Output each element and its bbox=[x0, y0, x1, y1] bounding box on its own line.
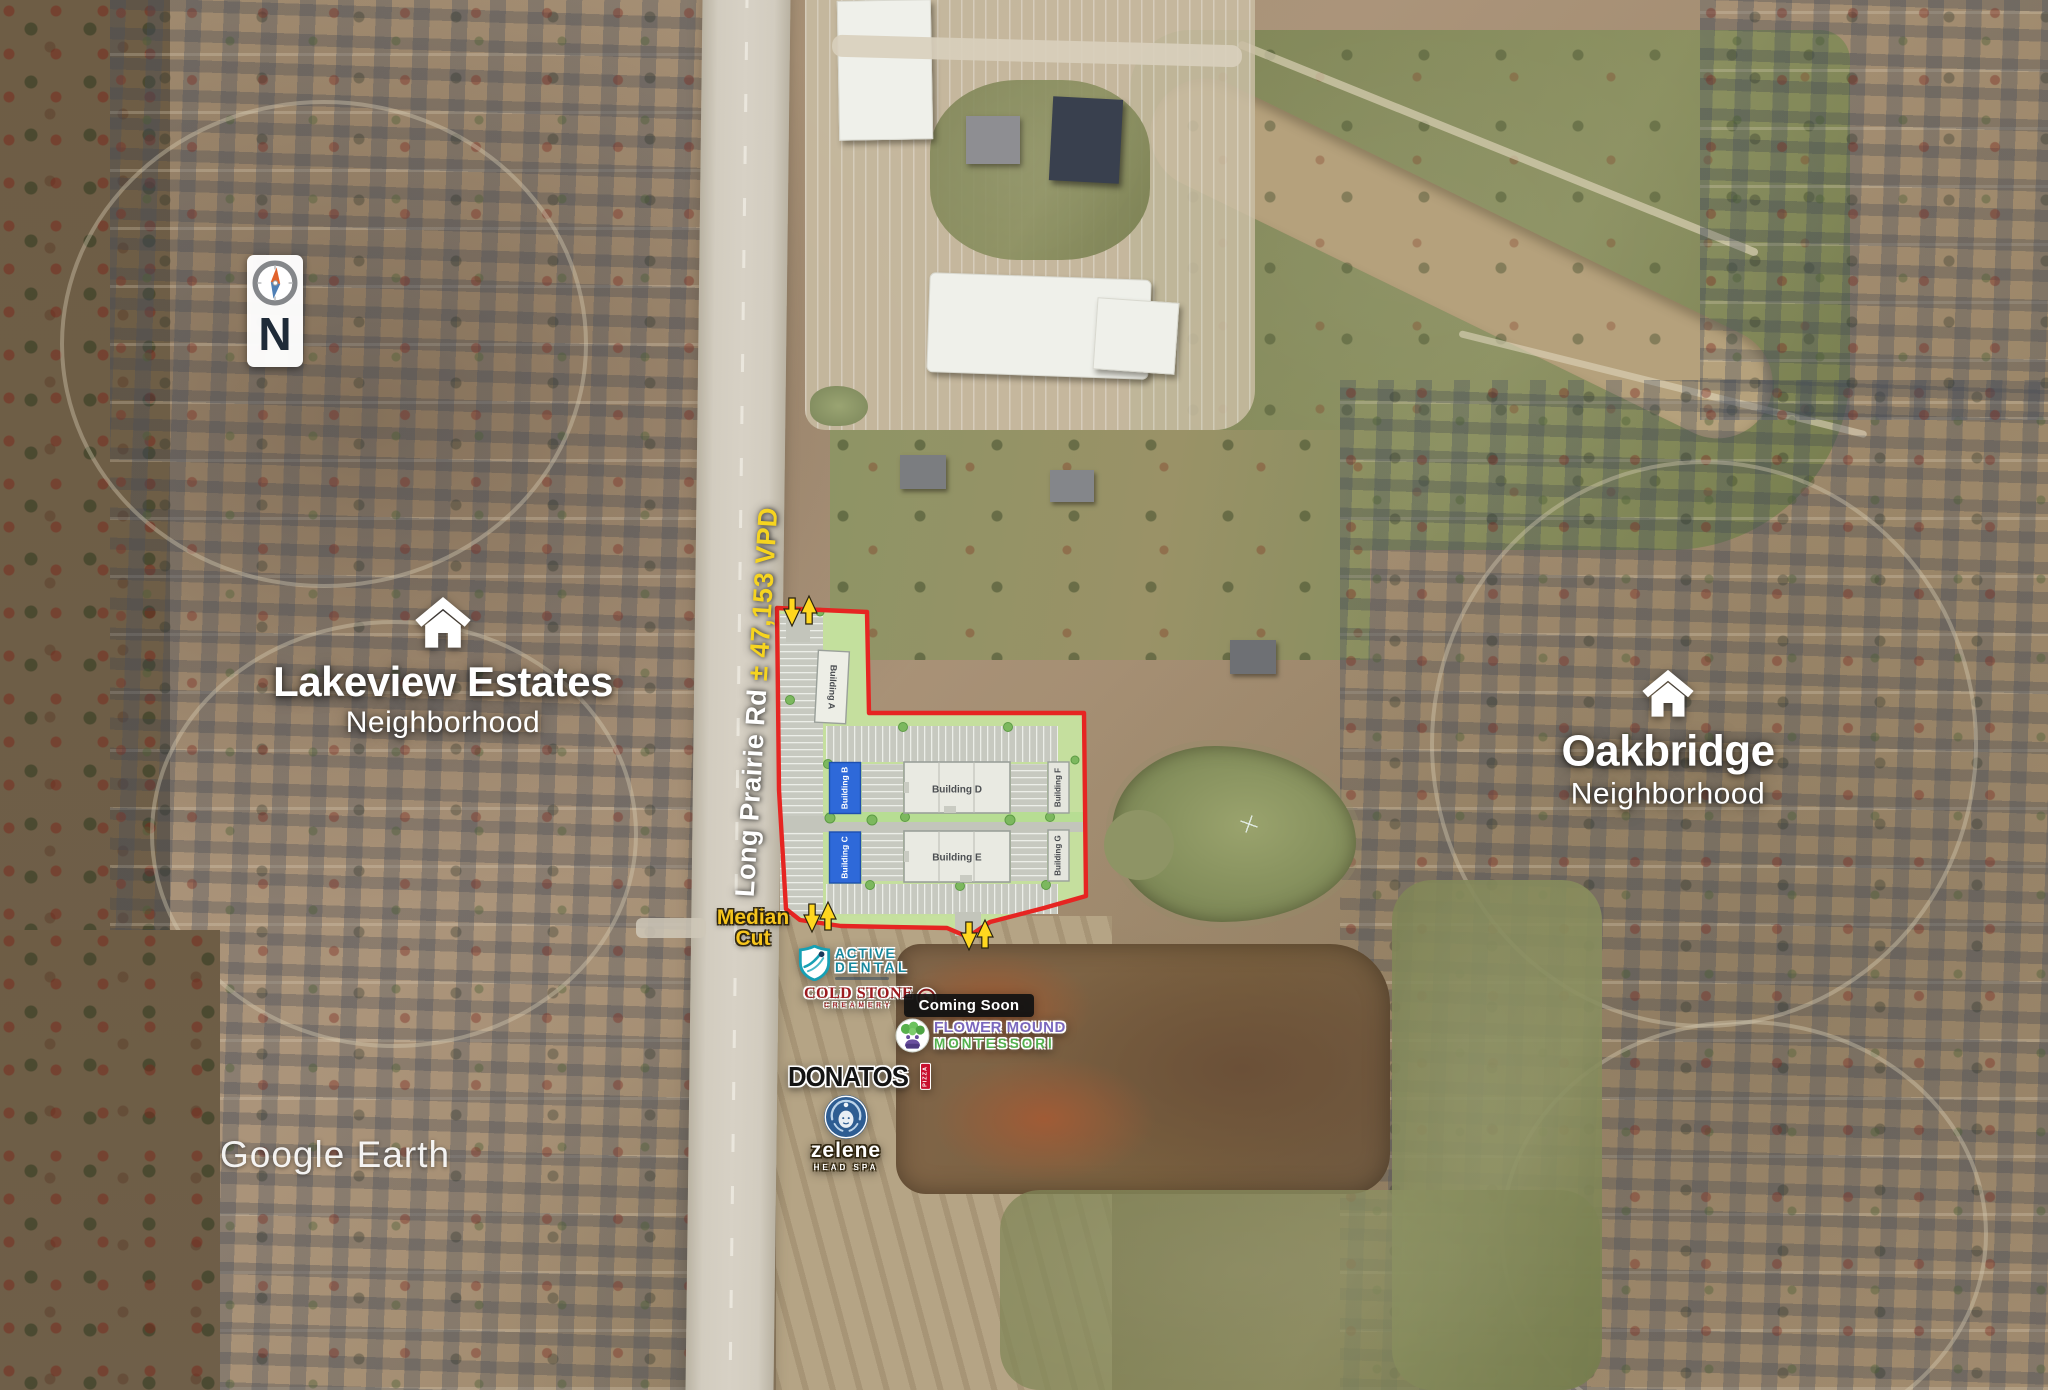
coming-soon-badge: Coming Soon bbox=[904, 994, 1034, 1017]
dark-roof-building bbox=[1049, 96, 1123, 184]
pond-notch bbox=[1104, 810, 1174, 880]
donatos-logo: DONATOS PIZZA bbox=[788, 1063, 931, 1091]
parking-north-row bbox=[826, 726, 1058, 762]
office-building-roof bbox=[837, 0, 933, 141]
active-dental-line2: DENTAL bbox=[835, 961, 910, 975]
building-d: Building D bbox=[904, 762, 1010, 813]
house-roof bbox=[966, 116, 1020, 164]
montessori-logo: FLOWER MOUND MONTESSORI bbox=[895, 1018, 1066, 1053]
building-b-label: Building B bbox=[839, 767, 849, 810]
donatos-pizza-tag: PIZZA bbox=[920, 1063, 931, 1090]
zelene-wordmark: zelene bbox=[810, 1140, 882, 1162]
building-c-label: Building C bbox=[839, 836, 849, 879]
building-e: Building E bbox=[904, 831, 1010, 882]
rural-house-roof bbox=[1050, 470, 1094, 502]
building-a: Building A bbox=[815, 650, 850, 724]
building-f-label: Building F bbox=[1054, 768, 1063, 807]
parking-south-row bbox=[826, 884, 1058, 914]
house-icon bbox=[1641, 669, 1695, 718]
coming-soon-text: Coming Soon bbox=[919, 997, 1020, 1014]
aerial-map-canvas[interactable]: Building A Building B Building C Buildin… bbox=[0, 0, 2048, 1390]
building-e-label: Building E bbox=[932, 853, 982, 864]
north-east-neighborhood-texture bbox=[1700, 0, 2048, 420]
compass-north-letter: N bbox=[247, 313, 303, 357]
lakeview-title: Lakeview Estates bbox=[163, 658, 723, 706]
active-dental-shield-icon bbox=[798, 945, 831, 981]
oakbridge-label: Oakbridge Neighborhood bbox=[1438, 669, 1898, 812]
montessori-tree-icon bbox=[895, 1018, 930, 1053]
south-grass bbox=[1000, 1190, 1600, 1390]
building-b: Building B bbox=[830, 763, 861, 814]
zelene-subtitle: HEAD SPA bbox=[810, 1163, 882, 1172]
active-dental-line1: ACTIVE bbox=[835, 947, 910, 961]
median-cut-label: Median Cut bbox=[717, 907, 789, 949]
building-f: Building F bbox=[1048, 762, 1069, 813]
zelene-logo: zelene HEAD SPA bbox=[810, 1094, 882, 1172]
donatos-wordmark: DONATOS bbox=[788, 1063, 908, 1091]
small-pond bbox=[810, 386, 868, 426]
parking-west bbox=[780, 614, 823, 916]
woodland-southwest bbox=[0, 930, 220, 1390]
montessori-line2: MONTESSORI bbox=[934, 1037, 1066, 1051]
oakbridge-subtitle: Neighborhood bbox=[1438, 777, 1898, 811]
zelene-emblem-icon bbox=[823, 1094, 869, 1140]
compass-rose-icon bbox=[252, 260, 298, 306]
median-cut-drive bbox=[636, 918, 706, 938]
construction-site bbox=[896, 944, 1390, 1194]
cold-stone-line2: CREAMERY bbox=[804, 1003, 913, 1010]
building-d-label: Building D bbox=[932, 785, 982, 796]
house-icon bbox=[414, 596, 472, 649]
rural-house-roof bbox=[900, 455, 946, 489]
oakbridge-title: Oakbridge bbox=[1438, 727, 1898, 778]
active-dental-tagline-rule bbox=[835, 977, 889, 980]
site-plan-overlay: Building A Building B Building C Buildin… bbox=[756, 581, 1104, 963]
rural-house-roof bbox=[1230, 640, 1276, 674]
building-c: Building C bbox=[830, 832, 861, 883]
lakeview-subtitle: Neighborhood bbox=[163, 706, 723, 740]
active-dental-logo: ACTIVE DENTAL bbox=[798, 945, 910, 981]
cold-stone-line1: COLD STONE bbox=[804, 986, 913, 1002]
curved-street bbox=[60, 100, 588, 588]
google-earth-watermark: Google Earth bbox=[220, 1134, 450, 1176]
median-cut-line2: Cut bbox=[717, 928, 789, 949]
lakeview-label: Lakeview Estates Neighborhood bbox=[163, 596, 723, 740]
building-g: Building G bbox=[1048, 830, 1069, 881]
montessori-line1: FLOWER MOUND bbox=[934, 1020, 1066, 1035]
church-wing-roof bbox=[1093, 297, 1180, 375]
median-cut-line1: Median bbox=[717, 907, 789, 928]
building-g-label: Building G bbox=[1054, 835, 1063, 875]
compass-card: N bbox=[247, 255, 303, 367]
